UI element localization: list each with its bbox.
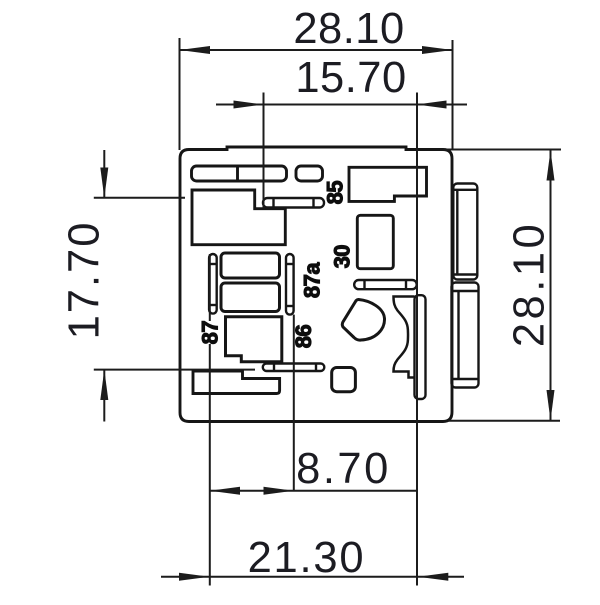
svg-text:28.10: 28.10 — [293, 5, 404, 53]
svg-text:85: 85 — [323, 181, 348, 205]
svg-text:15.70: 15.70 — [295, 54, 406, 102]
svg-text:17.70: 17.70 — [61, 221, 109, 340]
svg-text:21.30: 21.30 — [248, 534, 366, 582]
svg-text:28.10: 28.10 — [506, 221, 554, 347]
svg-text:8.70: 8.70 — [296, 445, 391, 493]
svg-text:87: 87 — [197, 321, 222, 345]
svg-text:30: 30 — [329, 245, 354, 269]
svg-text:87a: 87a — [300, 262, 325, 298]
svg-text:86: 86 — [291, 325, 316, 349]
